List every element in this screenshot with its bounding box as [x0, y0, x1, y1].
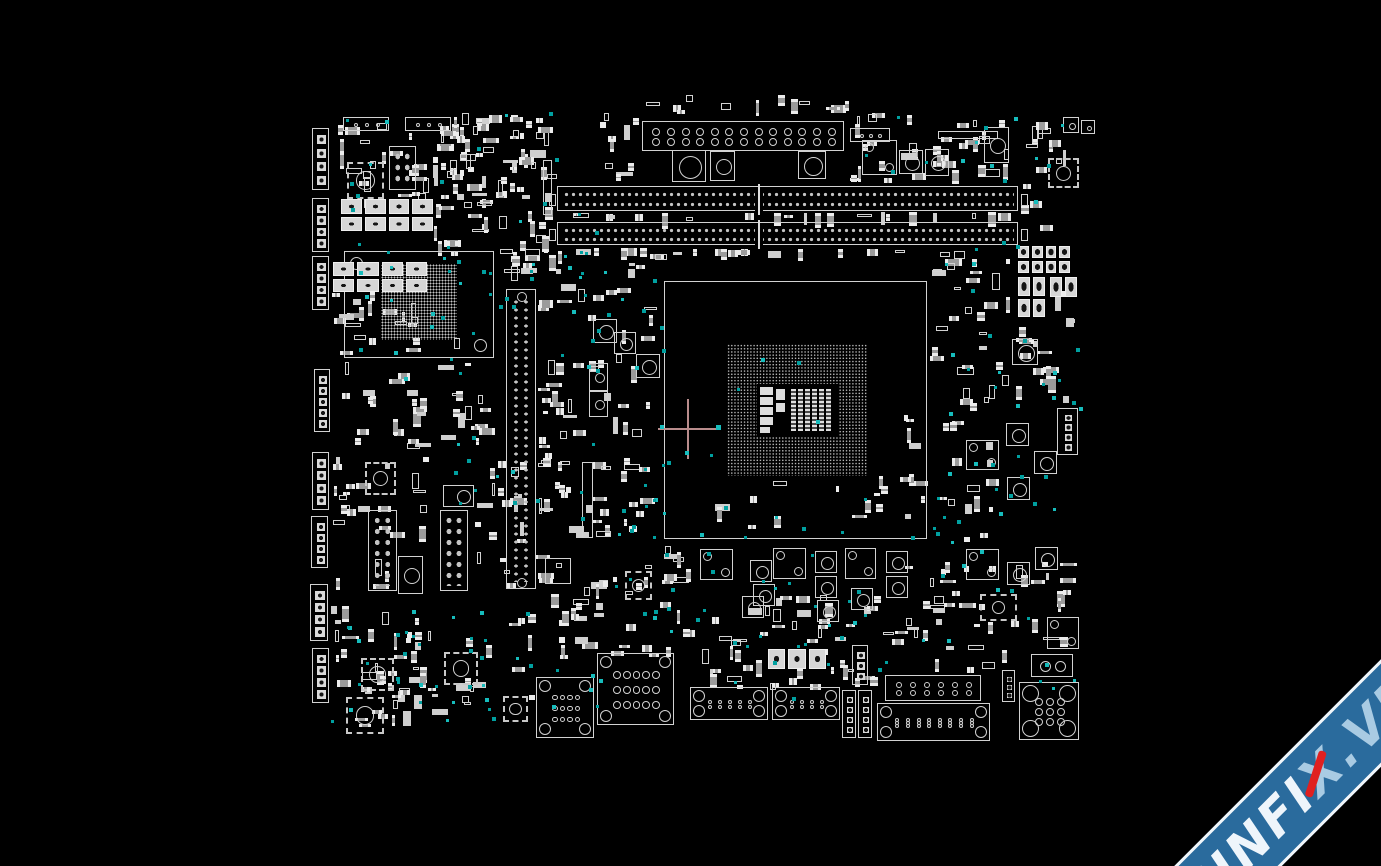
pin-pad [1065, 424, 1072, 431]
smd-component [605, 163, 613, 169]
smd-component [738, 250, 751, 255]
via-dot [1053, 371, 1057, 375]
bios-chip[interactable] [368, 510, 397, 591]
pin-pad [718, 700, 722, 704]
smd-component [509, 623, 521, 626]
smd-component [473, 126, 477, 135]
smd-component [982, 662, 995, 670]
mosfet-grid [1018, 277, 1045, 317]
via-dot [366, 662, 369, 665]
choke [773, 548, 806, 579]
smd-component [357, 429, 369, 435]
pci-slot[interactable] [506, 289, 536, 589]
pin-pad [633, 671, 641, 679]
pin-pad [820, 700, 824, 704]
via-dot [1058, 379, 1061, 382]
smd-component [945, 562, 950, 573]
smd-component [382, 612, 389, 624]
smd-component [483, 147, 494, 153]
pin-header[interactable] [858, 690, 872, 738]
via-dot [802, 527, 806, 531]
pin-pad [642, 686, 650, 694]
via-dot [591, 674, 595, 678]
smd-component [345, 362, 349, 376]
via-dot [671, 588, 675, 592]
via-dot [467, 459, 471, 463]
smd-component [619, 645, 630, 648]
capacitor-body [990, 138, 1006, 154]
smd-component [512, 256, 520, 265]
via-dot [990, 164, 994, 168]
via-dot [578, 213, 581, 216]
ic-chip[interactable] [347, 162, 384, 199]
smd-component [930, 578, 933, 587]
dip-pad-columns [444, 515, 464, 586]
via-dot [1010, 589, 1014, 593]
pin-pad [857, 673, 865, 681]
via-dot [667, 607, 671, 611]
smd-component [420, 398, 427, 409]
smd-component [400, 690, 410, 695]
via-dot [584, 294, 587, 297]
smd-component [646, 402, 650, 409]
mount-hole [693, 690, 705, 702]
pin-pad [613, 701, 621, 709]
via-dot [595, 231, 599, 235]
via-dot [645, 505, 648, 508]
via-dot [472, 332, 475, 335]
mount-hole [1022, 720, 1039, 737]
via-dot [998, 371, 1001, 374]
mosfet [341, 217, 362, 232]
via-dot [653, 536, 656, 539]
via-dot [496, 475, 499, 478]
pin-header[interactable] [842, 690, 856, 738]
smd-component [946, 646, 954, 650]
smd-component [521, 149, 525, 160]
via-dot [1033, 502, 1037, 506]
cavity-component [776, 389, 785, 400]
smd-component [438, 365, 454, 370]
capacitor-body [679, 156, 702, 179]
pin-header[interactable] [1002, 670, 1015, 702]
pin-pad [319, 387, 327, 395]
pin-pad [317, 216, 326, 225]
mount-hole [825, 690, 837, 702]
slot-end-hole [517, 292, 527, 302]
cap [1081, 120, 1095, 134]
chip-pads [980, 594, 1017, 621]
pin-header[interactable] [311, 516, 328, 568]
via-dot [556, 669, 559, 672]
pin-pad [1065, 415, 1072, 422]
via-dot [878, 668, 882, 672]
pin-pad [896, 682, 902, 688]
via-dot [644, 484, 647, 487]
via-dot [469, 649, 473, 653]
dimm-slot-1[interactable] [557, 186, 1018, 211]
via-dot [761, 358, 765, 362]
smd-component [662, 580, 673, 584]
pin-pad [376, 123, 380, 127]
pin-pad [828, 128, 836, 136]
corner-hole [721, 568, 730, 577]
smd-component [640, 248, 648, 257]
capacitor-body [595, 400, 605, 410]
pin-pad [567, 706, 573, 712]
smd-component [479, 428, 496, 435]
dimm-slot-2[interactable] [557, 222, 1018, 245]
via-dot [774, 587, 777, 590]
slot-latch [549, 229, 556, 241]
smd-component [341, 505, 347, 515]
capacitor-body [905, 156, 920, 171]
pin-pad [1046, 698, 1054, 706]
smd-component [883, 632, 894, 635]
smd-component [626, 624, 636, 631]
pin-pad [910, 690, 916, 696]
smd-component [483, 138, 500, 143]
smd-component [1002, 650, 1007, 663]
smd-component [939, 497, 946, 500]
via-dot [403, 652, 407, 656]
via-dot [580, 251, 583, 254]
via-dot [957, 520, 961, 524]
smd-component [964, 537, 970, 543]
smd-component [745, 213, 755, 220]
via-dot [448, 270, 451, 273]
smd-component [923, 601, 931, 609]
smd-component [484, 217, 488, 233]
smd-component [560, 431, 568, 440]
cap [589, 391, 608, 417]
via-dot [891, 170, 895, 174]
lpt-header[interactable] [877, 703, 990, 741]
pin-pad [696, 128, 704, 136]
smd-component [1055, 295, 1061, 311]
via-dot [642, 309, 646, 313]
pin-header[interactable] [1057, 408, 1078, 455]
via-dot [484, 639, 487, 642]
smd-component [610, 139, 614, 151]
pin-pad [800, 705, 804, 709]
smd-component [462, 696, 469, 703]
smd-component [621, 471, 627, 482]
smd-component [826, 107, 841, 110]
pin-pad [857, 652, 865, 660]
pin-header[interactable] [310, 584, 328, 641]
smd-component [360, 140, 369, 143]
cap [798, 151, 826, 179]
via-dot [762, 580, 765, 583]
smd-component [965, 504, 972, 514]
slot-end-hole [517, 578, 527, 588]
board-canvas[interactable] [0, 0, 1381, 866]
via-dot [459, 372, 462, 375]
outline [545, 558, 571, 584]
chip-pads [625, 571, 652, 600]
chip-center [992, 601, 1006, 615]
fan-header[interactable] [405, 117, 451, 131]
smd-component [768, 251, 781, 257]
atx-power-connector[interactable] [642, 121, 844, 151]
via-dot [962, 564, 966, 568]
smd-component [633, 118, 639, 125]
smd-component [513, 130, 519, 136]
smd-component [559, 637, 565, 644]
smd-component [594, 248, 600, 256]
smd-component [624, 464, 641, 470]
pin-pad [552, 717, 558, 723]
mosfet [1046, 246, 1057, 258]
pin-pad [784, 128, 792, 136]
smd-component [979, 346, 986, 350]
mosfet [389, 199, 410, 214]
via-dot [1076, 348, 1080, 352]
cavity-component [776, 403, 785, 412]
via-dot [472, 436, 476, 440]
smd-component [649, 315, 653, 326]
mount-hole [579, 723, 591, 735]
smd-component [477, 202, 492, 206]
pin-pad [416, 123, 420, 127]
smd-component [503, 160, 518, 163]
pin-pad [755, 138, 763, 146]
smd-component [339, 495, 347, 501]
bios-chip[interactable] [440, 510, 468, 591]
smd-component [1031, 580, 1044, 584]
via-dot [797, 361, 801, 365]
pin-pad [575, 695, 581, 701]
smd-component [932, 347, 938, 355]
pin-pad [708, 700, 712, 704]
smd-component [556, 269, 561, 274]
smd-component [336, 578, 340, 590]
pin-pad [863, 707, 869, 713]
smd-component [797, 668, 803, 679]
via-dot [441, 316, 445, 320]
smd-component [457, 194, 465, 199]
chip-center [356, 171, 375, 190]
smd-component [623, 422, 628, 435]
smd-component [642, 645, 651, 651]
via-dot [412, 610, 416, 614]
via-dot [1072, 401, 1076, 405]
via-dot [1027, 617, 1030, 620]
smd-component [441, 195, 449, 200]
bottom-connector[interactable] [597, 653, 674, 725]
pin-pad [317, 523, 325, 531]
via-dot [984, 126, 988, 130]
pin-pad [847, 727, 853, 733]
capacitor-body [1018, 345, 1035, 362]
pin-header[interactable] [312, 648, 329, 703]
via-dot [1052, 396, 1056, 400]
smd-component [972, 213, 976, 220]
usb-header[interactable] [690, 687, 768, 720]
pin-pad [315, 627, 324, 636]
pin-pad [798, 138, 806, 146]
smd-component [335, 630, 339, 642]
via-dot [530, 270, 533, 273]
smd-component [336, 655, 339, 662]
pin-pad [847, 707, 853, 713]
usb-header[interactable] [772, 687, 840, 720]
cavity-component [760, 407, 773, 415]
smd-component [432, 694, 438, 697]
mosfet [1059, 261, 1070, 273]
pin-header[interactable] [852, 645, 868, 685]
via-dot [564, 255, 567, 258]
smd-component [1006, 259, 1010, 264]
smd-component [677, 610, 680, 624]
smd-component [933, 269, 943, 273]
smd-component [489, 115, 501, 123]
pin-pad [319, 420, 327, 428]
mosfet [412, 199, 433, 214]
pin-pad [1065, 444, 1072, 451]
cap [1006, 423, 1029, 446]
smd-component [721, 103, 730, 110]
fan-header[interactable] [343, 117, 389, 131]
smd-component [791, 99, 799, 114]
mosfet [1018, 261, 1029, 273]
smd-component [965, 307, 972, 314]
smd-component [625, 248, 637, 255]
smd-component [511, 266, 519, 281]
smd-component [412, 192, 420, 196]
cavity-capacitor-bank [805, 389, 810, 431]
corner-hole [848, 551, 857, 560]
cap [851, 588, 873, 610]
smd-component [500, 249, 513, 254]
smd-component [884, 178, 892, 183]
smd-component [940, 580, 957, 583]
smd-component [596, 603, 603, 610]
via-dot [346, 119, 349, 122]
chip-center [356, 706, 375, 725]
smd-component [807, 639, 818, 644]
pin-pad [1055, 661, 1066, 672]
pin-pad [748, 705, 752, 709]
smd-component [593, 520, 602, 523]
front-panel-connector[interactable] [536, 677, 594, 738]
dip-pad-columns [393, 151, 412, 185]
pin-pad [798, 128, 806, 136]
smd-component [934, 596, 944, 603]
smd-component [510, 167, 517, 170]
smd-component [617, 288, 631, 293]
pin-pad [952, 690, 958, 696]
pin-pad [847, 717, 853, 723]
smd-component [996, 362, 1004, 370]
via-dot [804, 643, 807, 646]
corner-hole [776, 551, 785, 560]
smd-component [596, 584, 599, 599]
via-dot [667, 461, 671, 465]
pin-header[interactable] [312, 452, 329, 510]
smd-component [340, 139, 344, 154]
smd-component [613, 577, 617, 582]
slot-key [758, 220, 760, 249]
pin-pad [847, 697, 853, 703]
cap [589, 363, 608, 391]
capacitor-body [892, 582, 905, 595]
via-dot [759, 635, 762, 638]
via-dot [841, 531, 844, 534]
smd-component [936, 619, 941, 625]
pin-header[interactable] [312, 198, 329, 252]
mosfet-grid [1050, 277, 1077, 297]
smd-component [411, 651, 417, 663]
via-dot [848, 600, 851, 603]
via-dot [662, 464, 665, 467]
via-dot [552, 705, 556, 709]
smd-component [629, 263, 636, 266]
via-dot [792, 697, 796, 701]
mount-hole [600, 656, 612, 668]
capacitor-body [1040, 457, 1054, 471]
pin-header[interactable] [314, 369, 330, 432]
smd-component [438, 146, 452, 151]
via-dot [994, 386, 997, 389]
smd-component [944, 603, 955, 607]
smd-component [453, 184, 458, 194]
via-dot [711, 570, 715, 574]
slot-pad-row [563, 191, 1014, 199]
via-dot [999, 512, 1003, 516]
via-dot [949, 412, 953, 416]
mount-hole [775, 705, 787, 717]
power-connector[interactable] [1019, 682, 1079, 740]
pin-header[interactable] [312, 128, 329, 190]
via-dot [707, 552, 711, 556]
via-dot [519, 220, 522, 223]
com-header[interactable] [885, 675, 981, 701]
capacitor-body [1087, 126, 1092, 131]
socket-center-components[interactable] [757, 384, 838, 436]
smd-component [539, 508, 553, 511]
ic-socket[interactable] [389, 146, 416, 190]
smd-component [957, 123, 969, 128]
via-dot [1053, 508, 1056, 511]
chip-pads [444, 652, 478, 685]
smd-component [721, 249, 727, 260]
smd-component [1036, 122, 1048, 130]
pin-pad [959, 724, 963, 728]
pin-pad [652, 686, 660, 694]
pin-header[interactable] [312, 256, 329, 310]
via-dot [446, 719, 449, 722]
via-dot [1045, 663, 1049, 667]
via-dot [419, 701, 422, 704]
pin-pad [910, 682, 916, 688]
smd-component [778, 95, 785, 106]
via-dot [543, 202, 547, 206]
via-dot [933, 527, 936, 530]
smd-component [912, 173, 926, 180]
pin-pad [315, 591, 324, 600]
smd-component [730, 646, 733, 660]
smd-component [433, 165, 439, 178]
pin-pad [711, 128, 719, 136]
mount-hole [880, 706, 892, 718]
smd-component [462, 113, 470, 126]
cap [815, 551, 837, 573]
slot-pad-row [563, 236, 1014, 243]
smd-component [702, 649, 709, 664]
smd-component [568, 399, 572, 414]
